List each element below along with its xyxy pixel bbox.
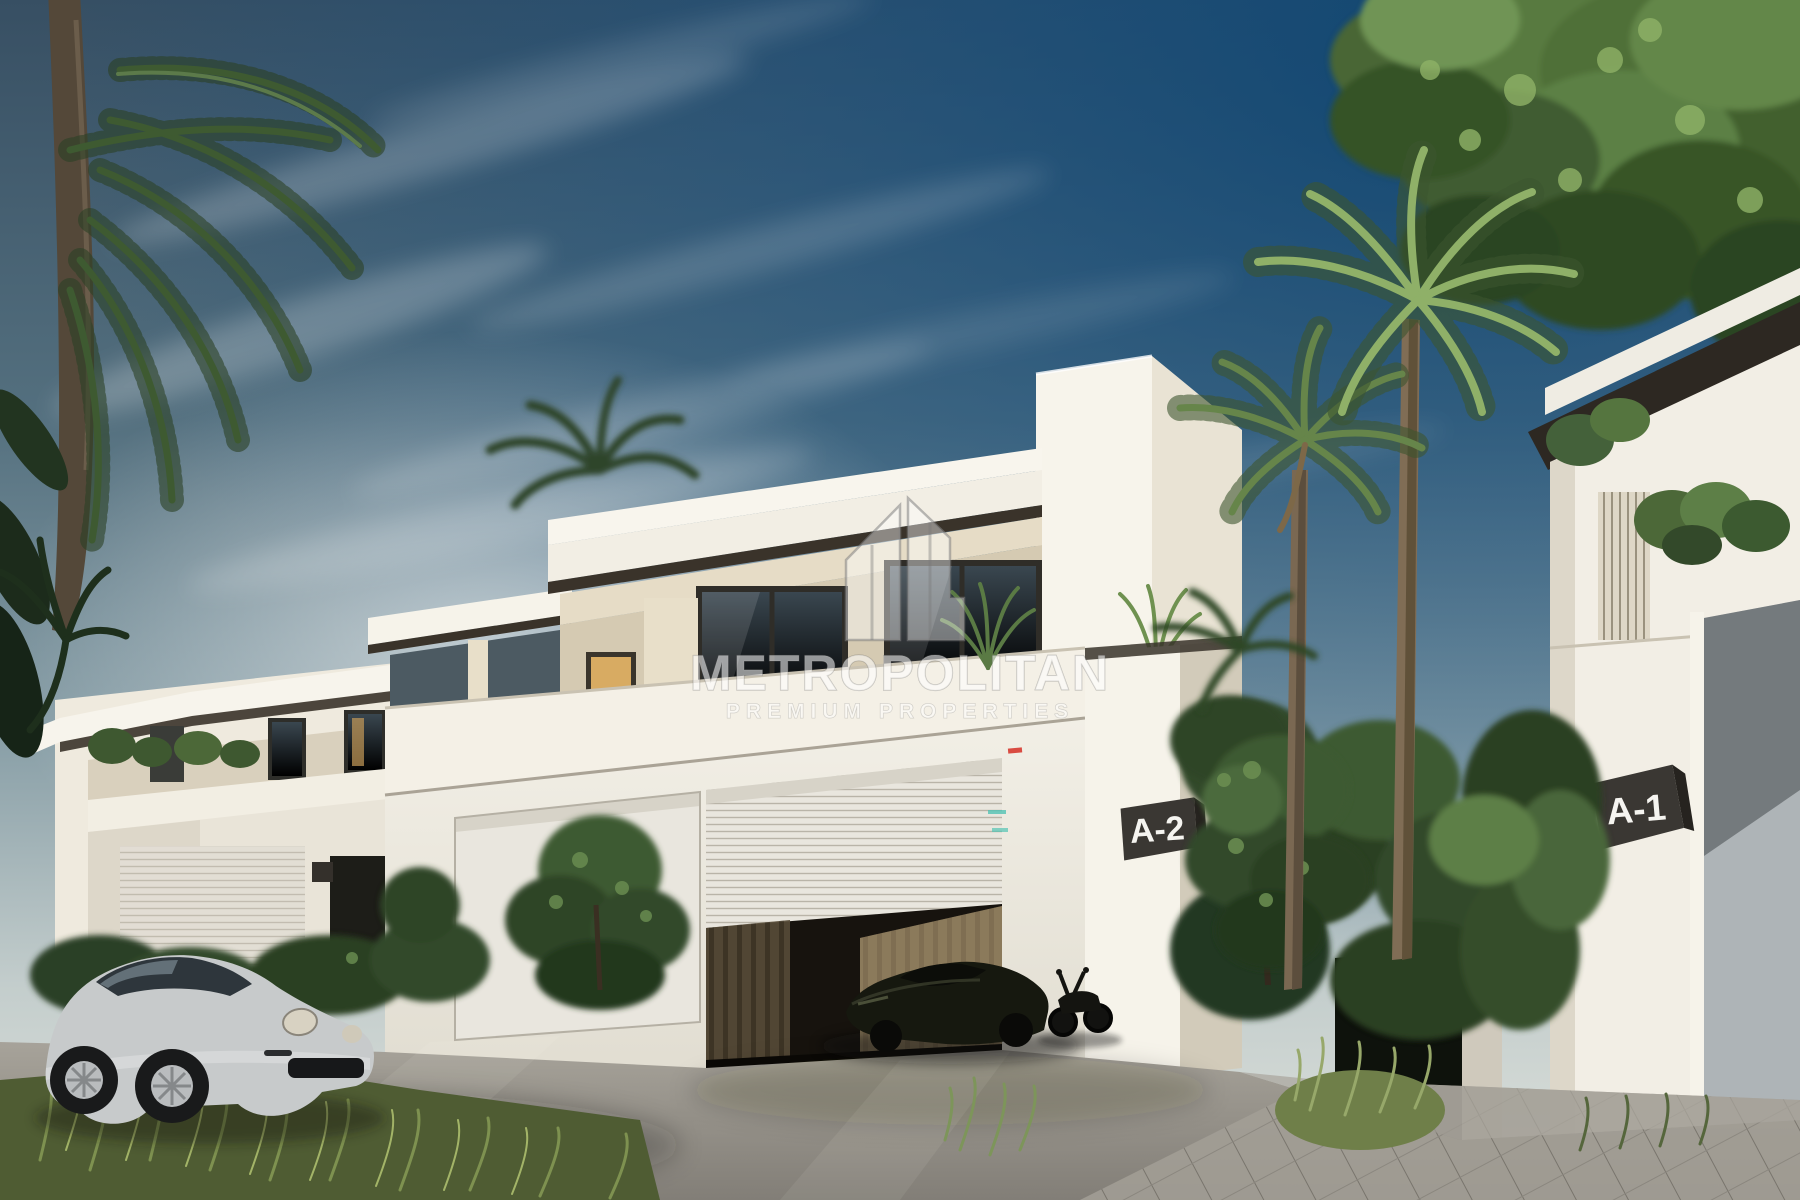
watermark-tagline: PREMIUM PROPERTIES: [726, 700, 1074, 723]
villa-a1: A-1: [1528, 268, 1800, 1158]
headlight: [342, 1025, 362, 1043]
shutter-door-a1: [1690, 600, 1800, 1152]
unit-plaque-a2-label: A-2: [1128, 809, 1185, 851]
teal-marker: [992, 828, 1008, 832]
unit-plaque-a1-label: A-1: [1605, 786, 1668, 832]
teal-marker: [988, 810, 1006, 814]
small-unit-plaque: [312, 862, 333, 882]
watermark-brand: METROPOLITAN: [690, 645, 1110, 701]
property-render: A-2: [0, 0, 1800, 1200]
front-intake: [288, 1058, 364, 1078]
